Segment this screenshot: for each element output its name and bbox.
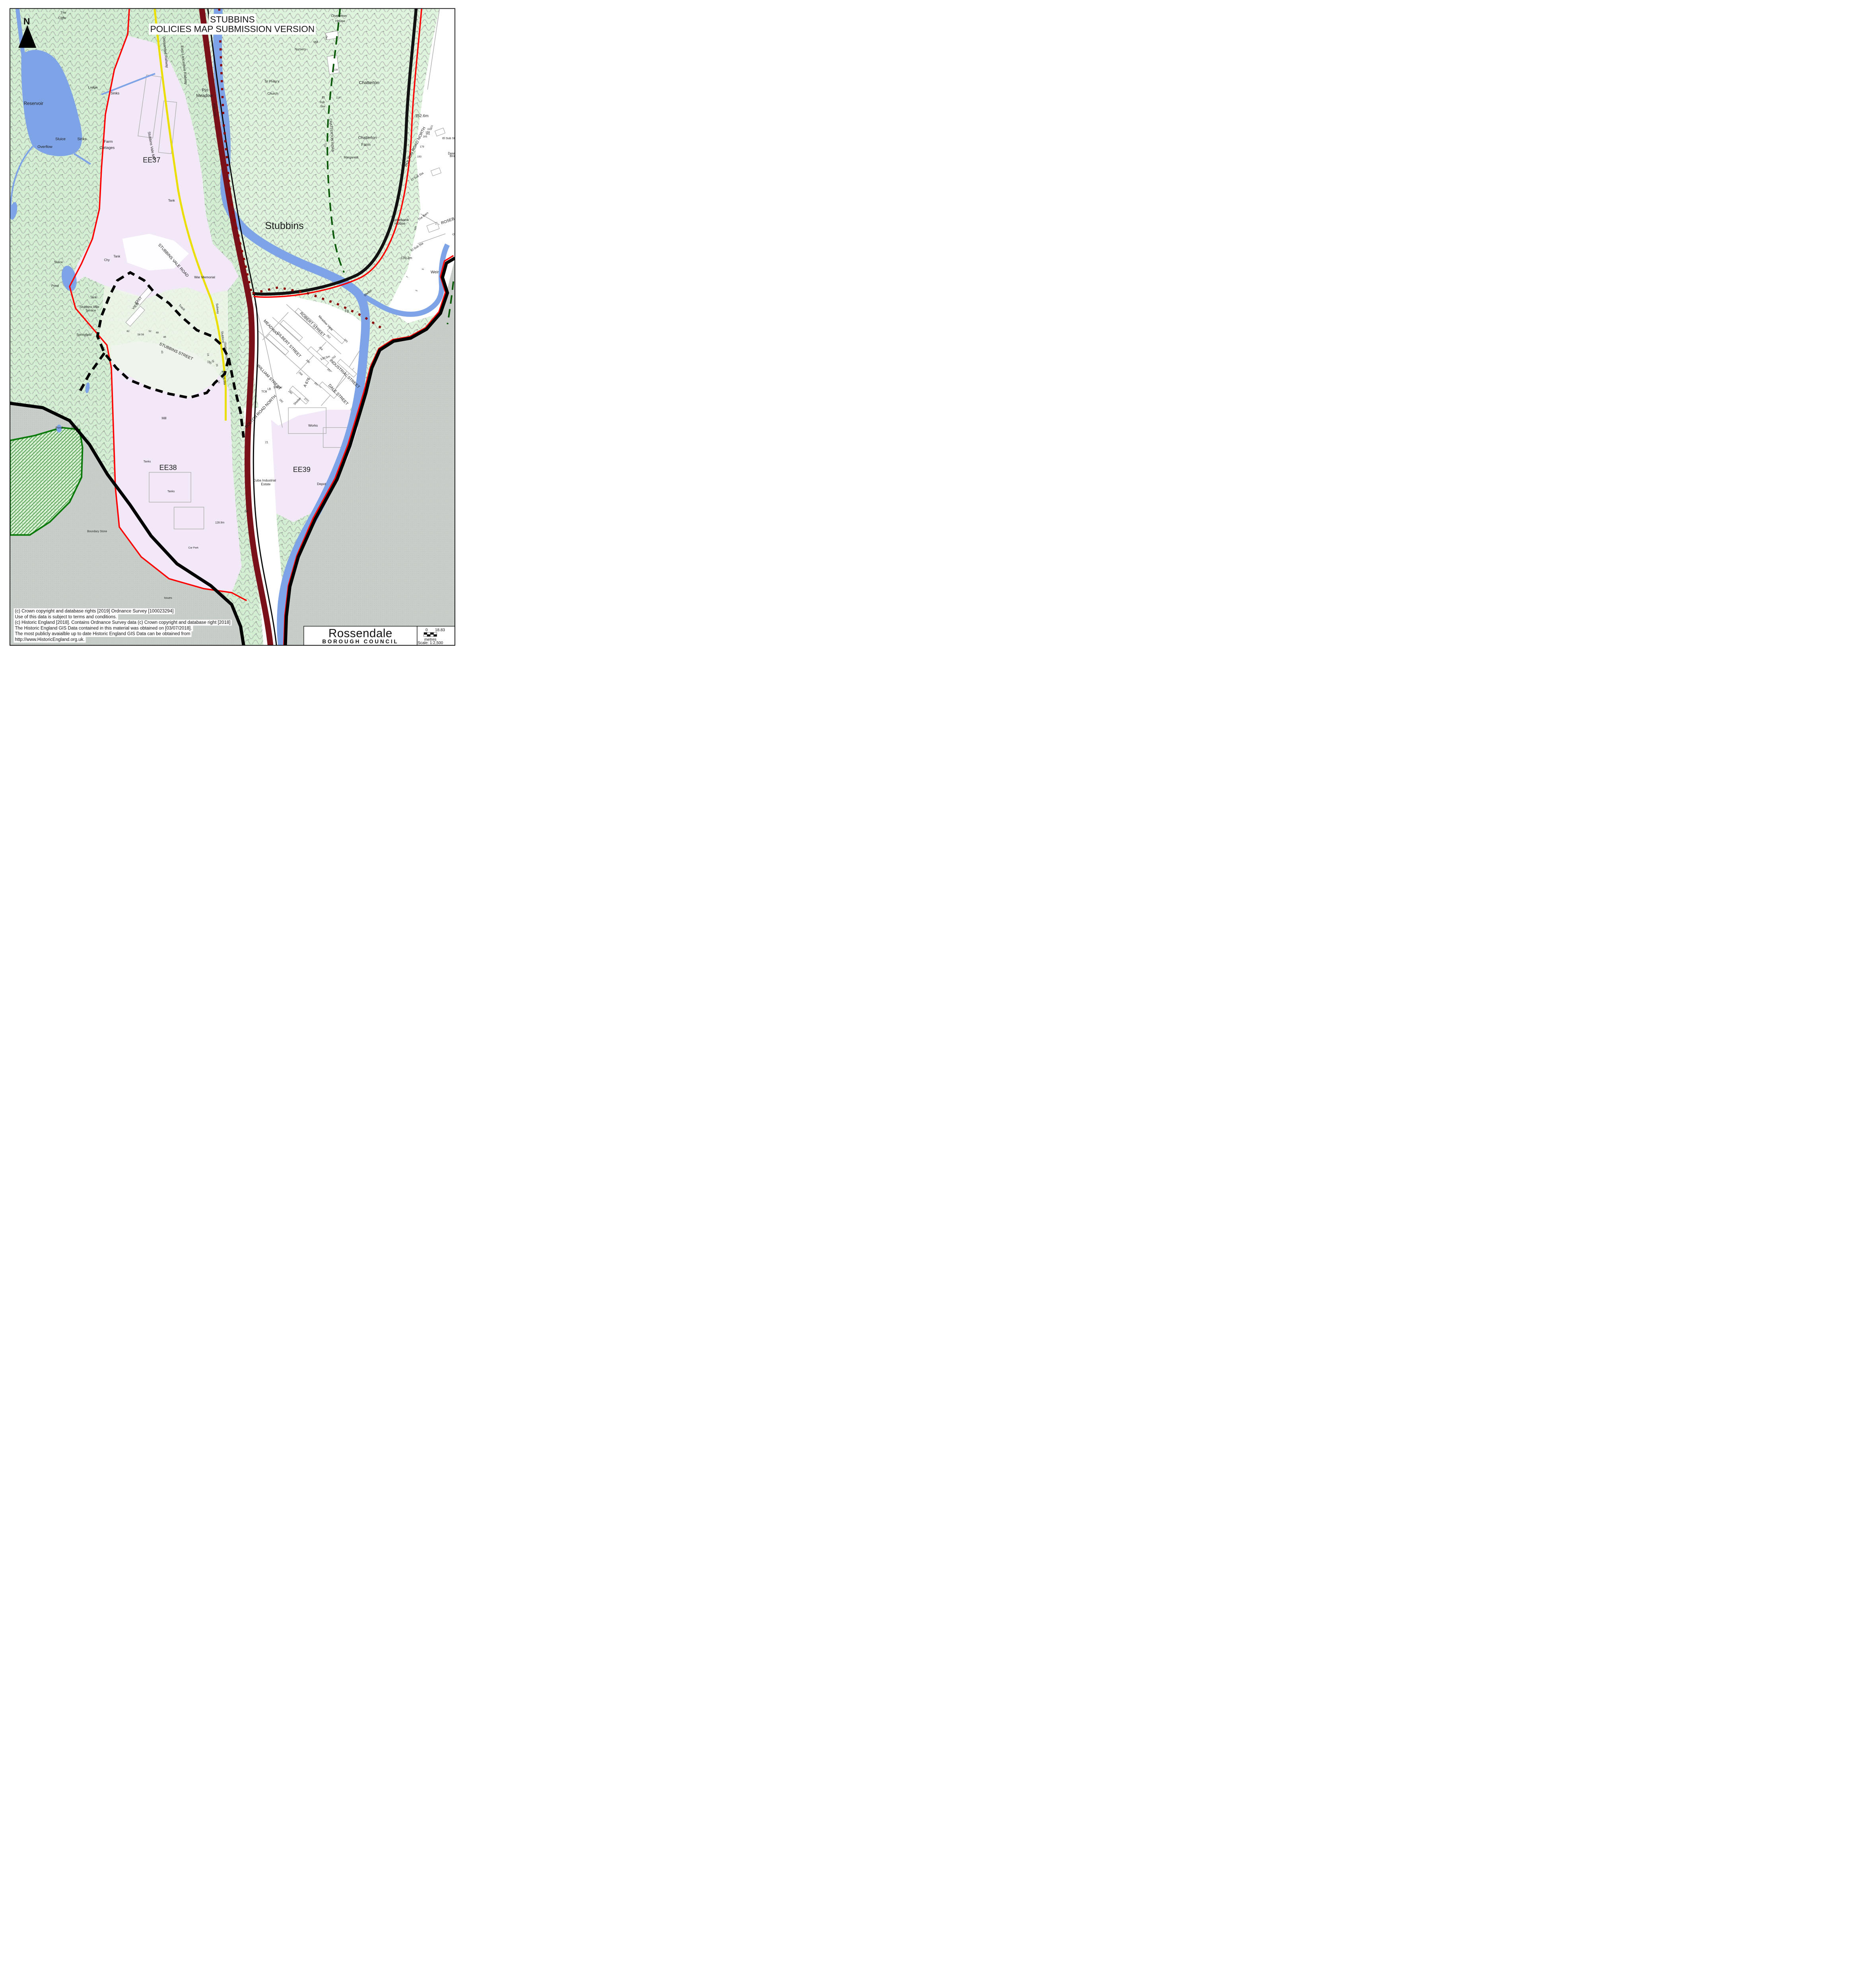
map-label: Issues — [164, 597, 172, 600]
map-label: 43 — [160, 350, 163, 353]
scalebar-distance: 18.83 — [435, 628, 445, 633]
map-label: 128 — [334, 69, 338, 72]
map-label: War Memorial — [194, 275, 215, 279]
map-label: Sta — [321, 105, 325, 108]
map-label: 46 — [163, 336, 166, 338]
map-label: Tank — [113, 254, 120, 258]
map-label: Works — [308, 423, 318, 427]
map-label: 52 — [148, 330, 152, 333]
map-label: Shelter — [274, 386, 283, 389]
copyright-line: Use of this data is subject to terms and… — [15, 615, 117, 619]
north-arrow-label: N — [23, 16, 30, 26]
map-label: Tanks — [167, 490, 175, 493]
map-label: 24 — [206, 353, 210, 356]
scalebar-checker — [424, 633, 437, 637]
map-label: The — [60, 11, 66, 15]
map-label: SP — [245, 510, 249, 513]
map-label: Sub — [319, 100, 324, 104]
map-label: El — [322, 96, 324, 99]
map-label: 56 — [141, 333, 144, 336]
map-label: Springfield — [76, 333, 91, 337]
map-label: St Philip's — [265, 80, 280, 83]
map-label: 152.6m — [415, 114, 428, 118]
map-label: Farm — [104, 140, 113, 144]
map-label: Tank — [168, 199, 175, 202]
map-label: House — [394, 221, 405, 226]
copyright-line: The most publicly avaialble up to date H… — [15, 632, 190, 637]
map-label: Chy — [104, 258, 110, 262]
map-label: Nursery — [295, 47, 306, 51]
title-line1: STUBBINS — [210, 14, 255, 24]
map-label: Chatterton — [358, 136, 377, 140]
scale-panel: 0 18.83 metres Scale: 1:2,500 — [417, 626, 455, 645]
logo-panel: Rossendale BOROUGH COUNCIL — [304, 626, 417, 645]
map-label: 193 — [417, 155, 422, 158]
map-label: 48 — [156, 332, 159, 334]
map-label: Bro — [450, 154, 455, 158]
map-label: Reservoir — [24, 101, 43, 106]
map-label: Cuba Industrial — [253, 478, 276, 482]
map-label: Sluice — [54, 260, 63, 264]
map-label: Sinks — [111, 91, 120, 95]
map-label: 179 — [420, 146, 424, 148]
map-label: Weir — [431, 270, 439, 275]
map-label: Tank — [90, 295, 97, 299]
map-label: Sluice — [55, 137, 66, 142]
map-label: 2 — [435, 222, 437, 225]
title-line2: POLICIES MAP SUBMISSION VERSION — [150, 24, 315, 34]
map-label: Chatterton — [331, 14, 347, 18]
map-label: Chatterton — [359, 80, 379, 85]
map-label: Sinks — [71, 425, 79, 429]
map-label: Pond — [56, 426, 63, 429]
map-label: 62 — [126, 330, 130, 333]
map-canvas: TheCliffeLodgeReservoirSluiceOverflowSin… — [8, 8, 458, 645]
map-label: EE39 — [293, 466, 311, 474]
map-label: 153 — [427, 128, 431, 131]
map-label: 16 — [215, 363, 218, 367]
scalebar-zero: 0 — [425, 628, 428, 633]
copyright-line: (c) Crown copyright and database rights … — [15, 609, 174, 614]
map-label: Farm — [361, 143, 371, 147]
copyright-line: The Historic England GIS Data contained … — [15, 626, 192, 631]
map-label: 128.9m — [215, 522, 225, 524]
map-label: Boundary Stone — [87, 530, 107, 533]
map-label: Overflow — [37, 145, 52, 149]
map-label: House — [335, 19, 345, 23]
map-label: Margareta — [344, 156, 358, 159]
map-label: LB — [268, 388, 271, 391]
map-label: 165 — [423, 135, 427, 138]
map-label: 18 — [211, 359, 214, 363]
map-svg: TheCliffeLodgeReservoirSluiceOverflowSin… — [0, 0, 465, 658]
map-label: 161 — [426, 133, 430, 136]
map-label: Tanks — [144, 460, 151, 463]
map-label: Stubbins Vale — [80, 305, 99, 309]
copyright-line: http://www.HistoricEngland.org.uk. — [15, 637, 85, 642]
scale-ratio: Scale: 1:2,500 — [418, 641, 443, 645]
map-label: Sinks — [78, 137, 87, 142]
map-label: Cottages — [99, 146, 115, 150]
logo-borough-council: BOROUGH COUNCIL — [322, 639, 398, 645]
map-label: Pond — [51, 284, 59, 288]
map-label: 14 — [217, 381, 220, 384]
map-label: EE38 — [159, 464, 177, 472]
map-label: Church — [267, 91, 278, 95]
policies-map-page: TheCliffeLodgeReservoirSluiceOverflowSin… — [0, 0, 465, 658]
map-label: 20 — [209, 361, 212, 364]
map-label: Stubbins — [265, 220, 304, 231]
map-label: Cliffe — [58, 16, 66, 20]
map-label: 114 — [336, 97, 340, 99]
map-label: Lodge — [88, 85, 98, 89]
map-label: Pin — [202, 88, 208, 93]
map-label: Terrace — [85, 309, 96, 313]
map-label: Depot — [317, 482, 326, 486]
map-label: 139.3m — [401, 256, 412, 260]
map-label: Meadow — [196, 93, 213, 98]
map-label: Mill — [313, 40, 318, 44]
map-label: Estate — [261, 482, 270, 486]
map-label: TCB — [261, 390, 267, 393]
map-label: Mill — [162, 416, 167, 420]
logo-rossendale: Rossendale — [328, 627, 392, 640]
copyright-line: (c) Historic England [2018]. Contains Or… — [15, 620, 231, 625]
map-label: Car Park — [188, 546, 199, 549]
map-label: 21 — [265, 441, 268, 444]
map-label: 58 — [138, 333, 141, 336]
map-label: FB — [345, 310, 349, 313]
